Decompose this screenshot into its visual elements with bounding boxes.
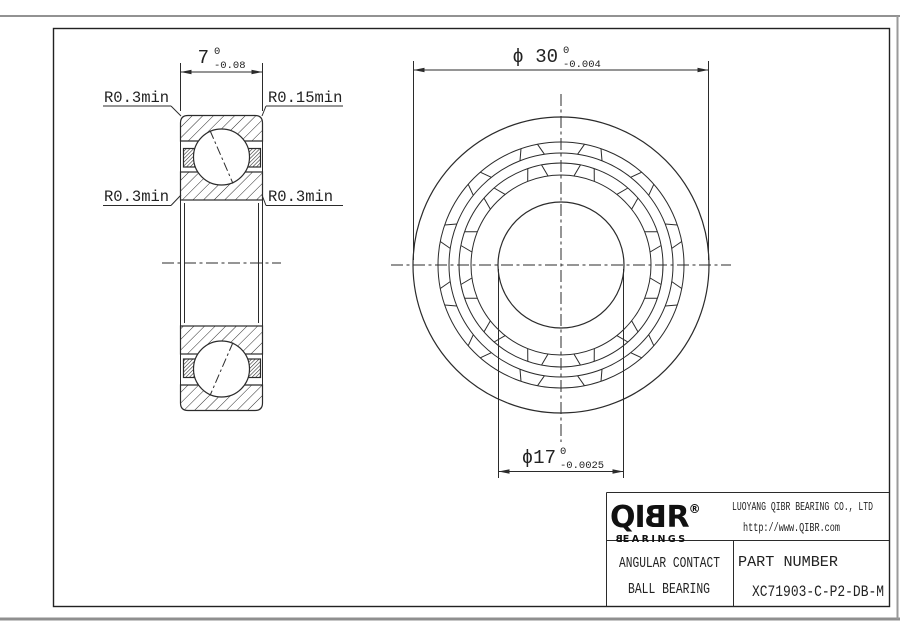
ball-bottom bbox=[194, 341, 250, 397]
dim-bore-tol-upper: 0 bbox=[560, 446, 566, 458]
cage-pocket-line bbox=[480, 172, 491, 177]
logo-subtext: BEARINGS bbox=[613, 534, 701, 545]
cage-pocket-line bbox=[484, 198, 490, 209]
cage-pocket-line bbox=[468, 184, 473, 195]
cage-pocket-line bbox=[665, 224, 677, 225]
cage-pocket-line bbox=[480, 353, 491, 358]
cage-pocket-line bbox=[601, 149, 602, 161]
product-title-line1: ANGULAR CONTACT bbox=[619, 555, 720, 572]
drawing-canvas: 7 0 -0.08 R0.3min R0.15min R0.3min R0.3m… bbox=[0, 0, 900, 636]
cage-pocket-line bbox=[578, 376, 585, 386]
cage-pocket-line bbox=[538, 376, 545, 386]
dim-width-value: 7 bbox=[198, 47, 209, 69]
cage-pocket-line bbox=[520, 369, 521, 381]
cage-pocket-line bbox=[445, 224, 457, 225]
cage-pocket-line bbox=[440, 282, 450, 289]
dim-od-value: ϕ 30 bbox=[512, 46, 558, 68]
dimension-width: 7 0 -0.08 bbox=[181, 46, 263, 111]
cage-pocket-line bbox=[650, 278, 661, 285]
cage-pocket-line bbox=[461, 246, 472, 253]
cage-pocket-line bbox=[632, 198, 638, 209]
cage-pocket-line bbox=[494, 336, 505, 342]
dim-bore-tol-lower: -0.0025 bbox=[560, 460, 604, 472]
cage-pocket-line bbox=[672, 242, 682, 249]
company-website: http://www.QIBR.com bbox=[743, 521, 840, 535]
part-number-value: XC71903-C-P2-DB-M bbox=[752, 583, 884, 601]
cage-pocket-line bbox=[440, 242, 450, 249]
cage-pocket-line bbox=[468, 335, 473, 346]
cage-pocket-line bbox=[461, 278, 472, 285]
drawing-border bbox=[54, 29, 890, 607]
company-logo: QIBR® BEARINGS bbox=[610, 494, 701, 545]
drawing-sheet: 7 0 -0.08 R0.3min R0.15min R0.3min R0.3m… bbox=[0, 0, 900, 636]
cage-pocket-line bbox=[649, 335, 654, 346]
label-r-mid-right: R0.3min bbox=[268, 188, 333, 206]
bearing-front-view bbox=[391, 94, 731, 442]
cage-pocket-line bbox=[542, 165, 549, 176]
cage-pocket-line bbox=[520, 149, 521, 161]
cage-pocket-line bbox=[484, 321, 490, 332]
cage-pocket-line bbox=[601, 369, 602, 381]
cage-pocket-line bbox=[631, 353, 642, 358]
bearing-section-view bbox=[162, 116, 281, 411]
dim-width-tol-lower: -0.08 bbox=[214, 60, 246, 72]
cage-pocket-line bbox=[649, 184, 654, 195]
dim-od-tol-lower: -0.004 bbox=[563, 59, 601, 71]
cage-pocket-line bbox=[665, 305, 677, 306]
product-title-line2: BALL BEARING bbox=[628, 581, 710, 598]
label-r-top-right: R0.15min bbox=[268, 89, 342, 107]
cage-pocket-line bbox=[574, 165, 581, 176]
ball-top bbox=[194, 129, 250, 185]
cage-pocket-line bbox=[445, 305, 457, 306]
dim-bore-value: ϕ17 bbox=[522, 447, 556, 469]
label-r-top-left: R0.3min bbox=[104, 89, 169, 107]
dim-od-tol-upper: 0 bbox=[563, 45, 569, 57]
company-name: LUOYANG QIBR BEARING CO., LTD bbox=[732, 501, 873, 514]
cage-pocket-line bbox=[574, 354, 581, 365]
cage-pocket-line bbox=[617, 188, 628, 194]
registered-mark-icon: ® bbox=[689, 502, 701, 516]
cage-pocket-line bbox=[542, 354, 549, 365]
cage-pocket-line bbox=[538, 144, 545, 154]
part-number-label: PART NUMBER bbox=[738, 554, 838, 571]
cage-pocket-line bbox=[578, 144, 585, 154]
label-r-mid-left: R0.3min bbox=[104, 188, 169, 206]
cage-pocket-line bbox=[672, 282, 682, 289]
cage-pocket-line bbox=[631, 172, 642, 177]
cage-pocket-line bbox=[494, 188, 505, 194]
cage-pocket-line bbox=[632, 321, 638, 332]
cage-pocket-line bbox=[650, 246, 661, 253]
cage-pocket-line bbox=[617, 336, 628, 342]
logo-wordmark: QIBR® bbox=[610, 494, 701, 533]
dim-width-tol-upper: 0 bbox=[214, 46, 220, 58]
